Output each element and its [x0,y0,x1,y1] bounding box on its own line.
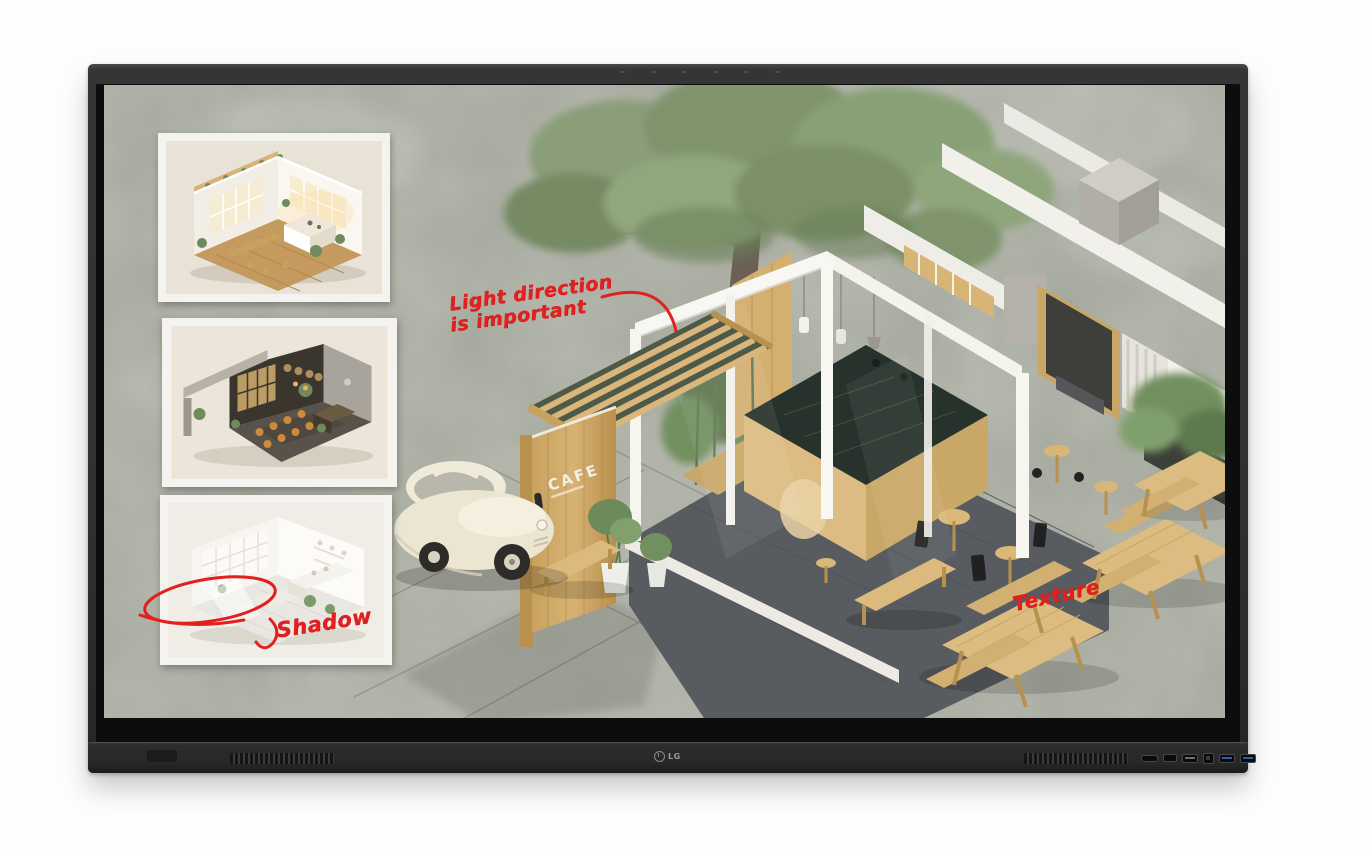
lg-logo: LG [654,751,681,762]
speaker-grille-icon [230,753,334,764]
warm-cafe-render [166,141,382,294]
card-slot-port[interactable] [1141,755,1158,762]
ir-sensor [147,750,177,762]
usb3-port[interactable] [1219,754,1235,763]
speaker-grille-icon [1024,753,1128,764]
display-screen: CAFE [104,85,1225,718]
bottom-bezel: LG [88,742,1248,773]
usb-a-port[interactable] [1182,754,1198,763]
lg-circle-icon [654,751,665,762]
mic-array-icon [620,71,780,73]
usb3-port[interactable] [1240,754,1256,763]
lg-display: CAFE [88,64,1248,773]
dark-cafe-render [170,326,389,479]
front-ports [1141,750,1256,766]
usb-b-touch-port[interactable] [1203,753,1214,764]
product-photo: { "device": { "brand": "LG", "logo_text"… [0,0,1370,855]
thumbnail-dark-cafe[interactable] [162,318,397,487]
thumbnail-warm-cafe[interactable] [158,133,390,302]
hdmi-port[interactable] [1163,754,1177,762]
